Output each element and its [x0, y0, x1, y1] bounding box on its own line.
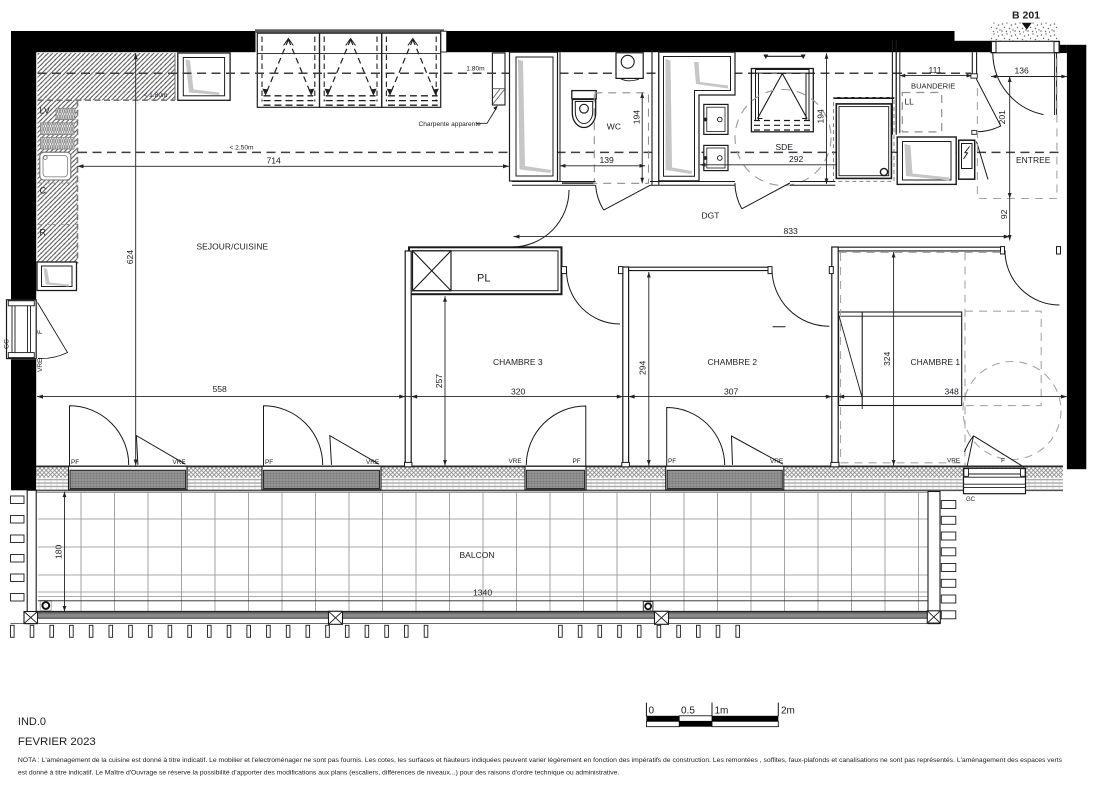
svg-text:558: 558 — [213, 384, 228, 394]
svg-text:2m: 2m — [781, 706, 795, 717]
svg-text:SDE: SDE — [776, 142, 794, 152]
svg-text:324: 324 — [882, 351, 892, 366]
svg-text:BALCON: BALCON — [460, 550, 495, 560]
svg-text:PL: PL — [477, 273, 490, 285]
svg-text:R: R — [40, 227, 47, 237]
svg-text:ENTREE: ENTREE — [1016, 155, 1051, 165]
svg-text:0.5: 0.5 — [681, 706, 695, 717]
svg-text:139: 139 — [600, 155, 615, 165]
svg-text:PF: PF — [71, 459, 79, 466]
svg-text:CHAMBRE 3: CHAMBRE 3 — [493, 357, 543, 367]
svg-text:VRE: VRE — [173, 459, 186, 466]
svg-text:CHAMBRE 1: CHAMBRE 1 — [911, 357, 961, 367]
svg-text:IND.0: IND.0 — [18, 716, 46, 728]
svg-text:NOTA : L'aménagement de la cui: NOTA : L'aménagement de la cuisine est d… — [18, 757, 1063, 764]
svg-text:833: 833 — [784, 226, 799, 236]
svg-text:BUANDERIE: BUANDERIE — [911, 82, 955, 91]
svg-text:WC: WC — [607, 122, 621, 132]
svg-text:F: F — [1001, 458, 1005, 465]
svg-text:1m: 1m — [715, 706, 729, 717]
svg-text:LV: LV — [40, 105, 50, 115]
svg-text:0: 0 — [649, 706, 655, 717]
svg-text:VRE: VRE — [37, 358, 44, 372]
svg-text:est donné à titre indicatif. L: est donné à titre indicatif. Le Maître d… — [18, 769, 620, 776]
svg-text:PF: PF — [668, 458, 676, 465]
svg-text:VRE: VRE — [947, 458, 960, 465]
svg-text:111: 111 — [929, 65, 942, 75]
svg-text:FEVRIER 2023: FEVRIER 2023 — [18, 736, 96, 748]
svg-text:180: 180 — [53, 544, 63, 559]
svg-text:LL: LL — [905, 97, 915, 107]
svg-text:292: 292 — [789, 154, 804, 164]
svg-text:VRE: VRE — [770, 458, 783, 465]
svg-text:624: 624 — [125, 250, 135, 265]
svg-text:714: 714 — [267, 156, 282, 166]
svg-text:GC: GC — [4, 339, 11, 349]
svg-text:92: 92 — [999, 209, 1009, 219]
svg-text:1340: 1340 — [473, 587, 492, 597]
svg-text:VRE: VRE — [366, 459, 379, 466]
svg-text:< 2.50m: < 2.50m — [230, 144, 255, 151]
svg-text:CHAMBRE 2: CHAMBRE 2 — [708, 357, 758, 367]
svg-text:257: 257 — [434, 374, 444, 389]
svg-text:1.80m: 1.80m — [466, 66, 485, 73]
svg-text:< 1.80m: < 1.80m — [144, 92, 169, 99]
svg-text:Charpente apparente: Charpente apparente — [419, 121, 482, 128]
svg-text:B 201: B 201 — [1012, 10, 1040, 22]
svg-text:F: F — [37, 330, 44, 334]
svg-text:201: 201 — [997, 110, 1007, 125]
svg-text:VRE: VRE — [509, 458, 522, 465]
svg-text:194: 194 — [632, 110, 642, 125]
svg-text:PF: PF — [265, 459, 273, 466]
svg-text:307: 307 — [724, 386, 739, 396]
svg-text:DGT: DGT — [702, 210, 720, 220]
svg-text:136: 136 — [1015, 65, 1030, 75]
svg-text:PF: PF — [573, 458, 581, 465]
svg-text:320: 320 — [511, 386, 526, 396]
svg-text:C: C — [40, 186, 47, 196]
svg-text:348: 348 — [945, 386, 960, 396]
svg-text:SEJOUR/CUISINE: SEJOUR/CUISINE — [197, 241, 269, 251]
svg-text:294: 294 — [638, 360, 648, 375]
svg-text:GC: GC — [966, 497, 976, 503]
svg-text:194: 194 — [816, 109, 826, 124]
